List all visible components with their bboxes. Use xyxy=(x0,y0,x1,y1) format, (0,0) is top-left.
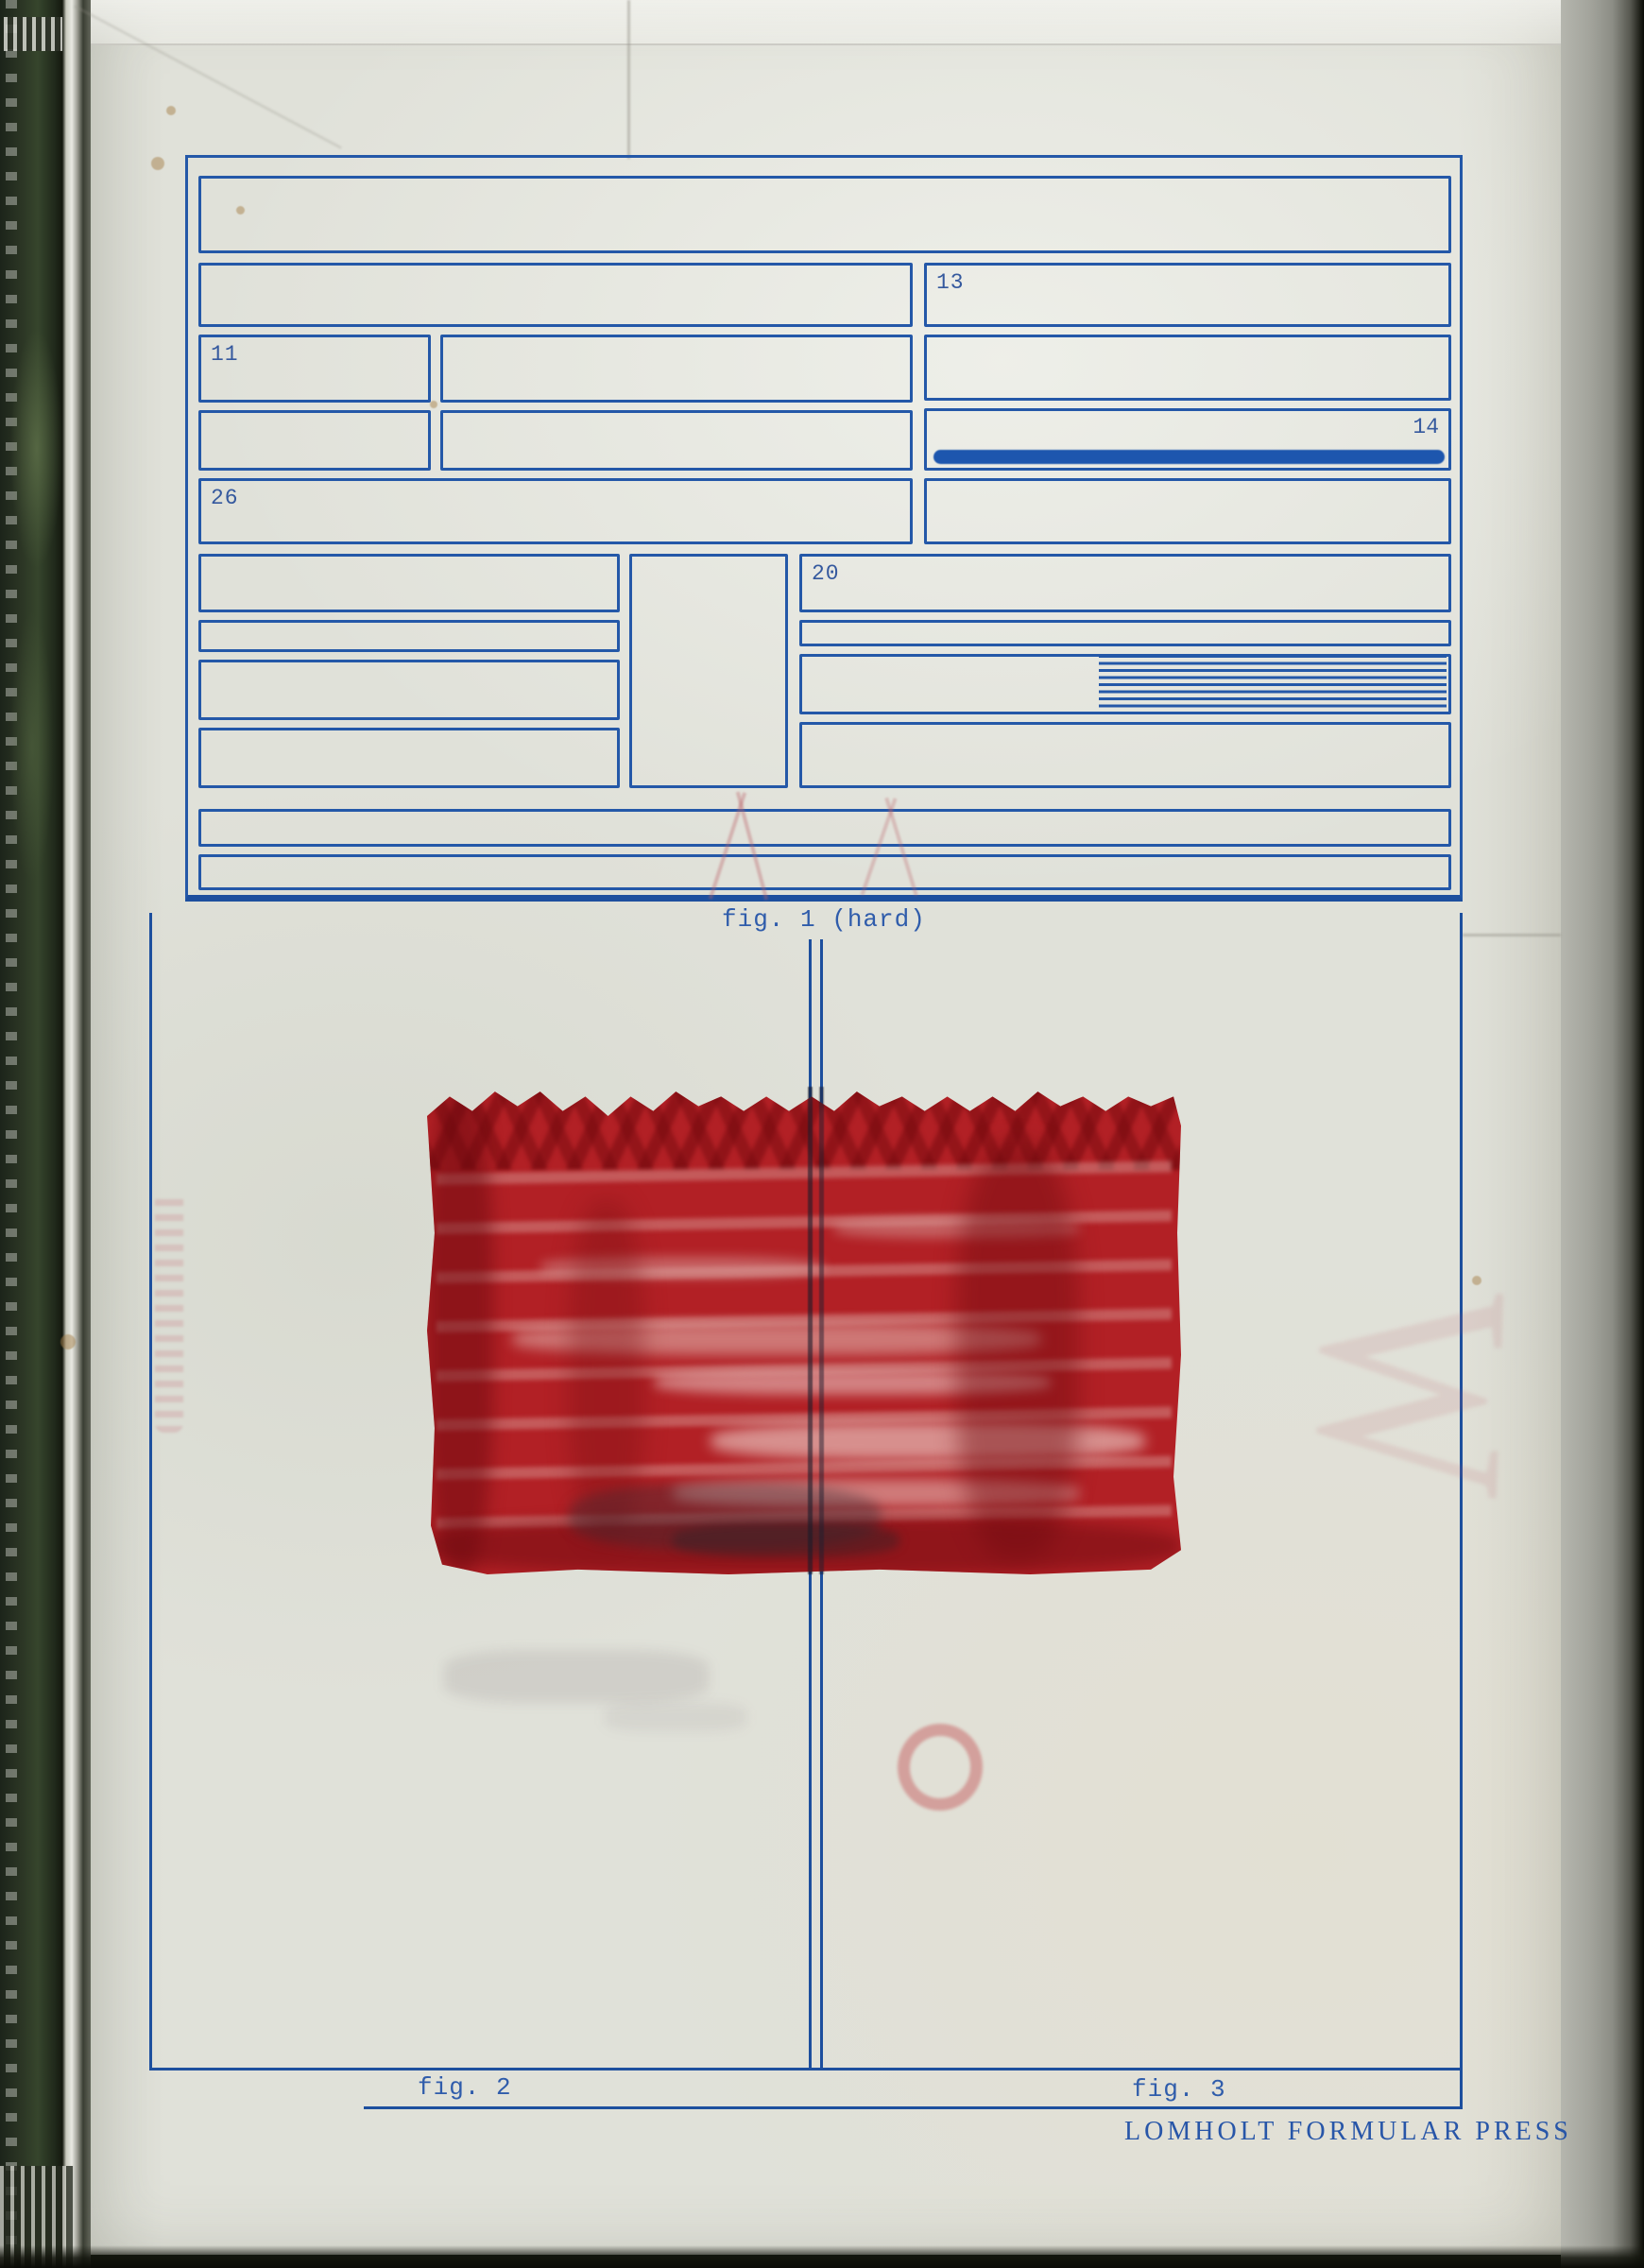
form-cell-hatched xyxy=(799,654,1451,714)
form-cell-header xyxy=(198,176,1451,253)
form-cell-row2-left xyxy=(198,263,913,327)
fig3-caption: fig. 3 xyxy=(1132,2075,1226,2104)
form-cell-11: 11 xyxy=(198,335,431,403)
ghost-smudge xyxy=(605,1703,746,1731)
sleeve-ridges-top xyxy=(4,17,62,51)
imprint-text: LOMHOLT FORMULAR PRESS xyxy=(1124,2117,1572,2147)
hand-drawn-marker-bar xyxy=(933,450,1445,464)
form-cell-row3-mid xyxy=(440,335,913,403)
hatch-lines xyxy=(1099,655,1447,714)
cell-number-label: 20 xyxy=(812,561,840,586)
form-cell-mid-b xyxy=(198,620,620,652)
form-cell-mid-a xyxy=(198,554,620,612)
ghost-smudge xyxy=(444,1650,709,1703)
form-cell-right-bottom xyxy=(799,722,1451,788)
foxing-spot xyxy=(151,157,164,170)
plastic-sleeve-left-edge xyxy=(0,0,91,2268)
divider-over-paint xyxy=(808,1087,813,1574)
form-cell-row3-right xyxy=(924,335,1451,401)
form-cell-row4-mid xyxy=(440,410,913,471)
form-cell-right-thin xyxy=(799,620,1451,646)
plastic-sleeve-right-edge xyxy=(1561,0,1644,2268)
paper-crease-right xyxy=(1463,934,1561,936)
form-cell-footer-1 xyxy=(198,809,1451,847)
form-cell-footer-2 xyxy=(198,854,1451,890)
form-cell-20: 20 xyxy=(799,554,1451,612)
paper-crease-top xyxy=(627,0,630,159)
cell-number-label: 11 xyxy=(211,342,239,367)
form-cell-row4-left xyxy=(198,410,431,471)
scanned-page: 13 11 14 26 20 fig. 1 (hard) W xyxy=(0,0,1644,2268)
foxing-spot xyxy=(60,1334,76,1349)
form-cell-mid-d xyxy=(198,728,620,788)
red-paint-block xyxy=(427,1087,1181,1574)
form-cell-14: 14 xyxy=(924,408,1451,471)
divider-over-paint xyxy=(819,1087,824,1574)
form-cell-26: 26 xyxy=(198,478,913,544)
form-cell-mid-c xyxy=(198,660,620,720)
cell-number-label: 26 xyxy=(211,486,239,510)
ghost-print-glyph: W xyxy=(1214,1284,1574,1457)
cell-number-label: 13 xyxy=(936,270,965,295)
paper-top-edge xyxy=(91,0,1561,45)
ghost-print-column xyxy=(155,1191,183,1433)
sleeve-mottling xyxy=(0,283,91,945)
paint-dark-band xyxy=(427,1087,493,1574)
panel-right-border xyxy=(1460,913,1463,2109)
foxing-spot xyxy=(1472,1276,1481,1285)
panel-bottom-line-2 xyxy=(364,2106,1463,2109)
panel-bottom-line-1 xyxy=(149,2068,1463,2070)
form-cell-center-tall xyxy=(629,554,788,788)
form-cell-row5-right xyxy=(924,478,1451,544)
paint-light-streak xyxy=(711,1422,1145,1460)
paint-dark-band xyxy=(956,1143,1079,1559)
form-cell-13: 13 xyxy=(924,263,1451,327)
cell-number-label: 14 xyxy=(1413,415,1439,439)
fig1-caption: fig. 1 (hard) xyxy=(722,905,926,934)
foxing-spot xyxy=(166,106,176,115)
fig2-caption: fig. 2 xyxy=(418,2073,512,2102)
sleeve-bottom-shadow xyxy=(0,2245,1644,2268)
panel-left-border xyxy=(149,913,152,2070)
paint-gray-smudge xyxy=(673,1523,899,1557)
